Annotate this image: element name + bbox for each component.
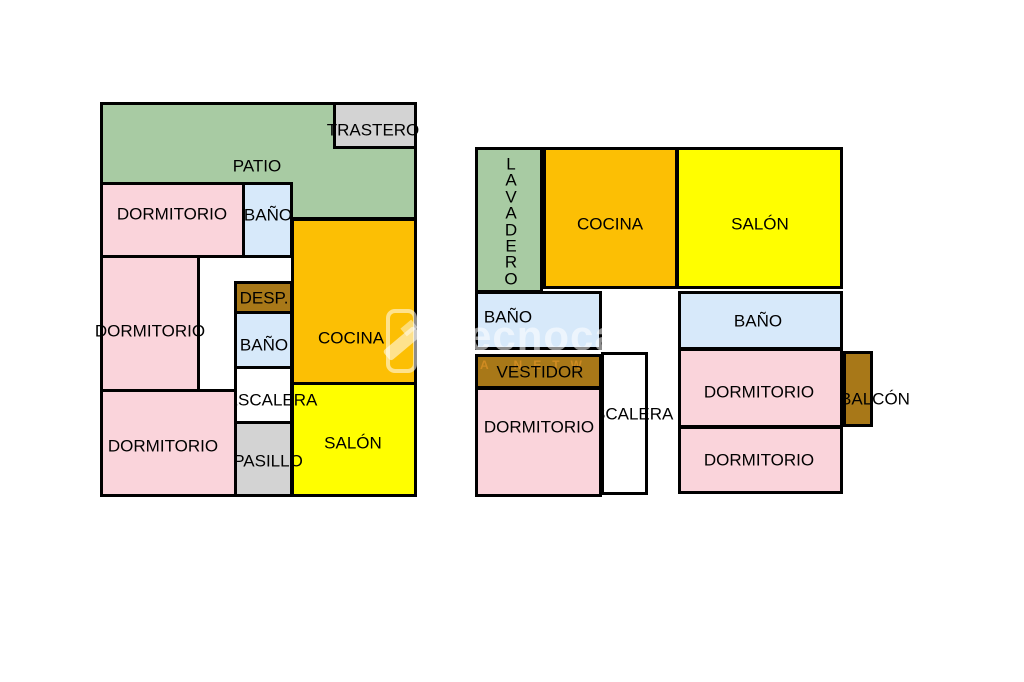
floor-plans-layer: PATIOTRASTERODORMITORIOBAÑOCOCINADESP.BA…	[0, 0, 1024, 682]
room-r-dormitorio-1	[678, 348, 843, 428]
room-l-trastero	[333, 102, 417, 149]
room-r-cocina	[543, 147, 678, 289]
room-l-pasillo	[234, 421, 293, 497]
room-r-bano-left	[475, 291, 602, 350]
room-r-bano-right	[678, 291, 843, 350]
room-r-salon	[676, 147, 843, 289]
room-l-salon	[291, 382, 417, 497]
room-r-vestidor	[475, 354, 602, 389]
room-r-lavadero	[475, 147, 543, 293]
room-l-bano-2	[234, 311, 293, 369]
floor-plan-image: PATIOTRASTERODORMITORIOBAÑOCOCINADESP.BA…	[0, 0, 1024, 682]
room-l-cocina	[291, 218, 417, 385]
room-l-desp	[234, 281, 293, 314]
room-l-bano-1	[242, 182, 293, 258]
room-r-escalera	[601, 352, 648, 495]
room-l-dormitorio-2	[100, 255, 200, 392]
room-l-dormitorio-1	[100, 182, 245, 258]
room-l-dormitorio-3	[100, 389, 237, 497]
room-l-escalera	[234, 366, 293, 424]
room-r-dormitorio-left	[475, 387, 602, 497]
room-r-balcon	[843, 351, 873, 427]
room-r-dormitorio-2	[678, 426, 843, 494]
